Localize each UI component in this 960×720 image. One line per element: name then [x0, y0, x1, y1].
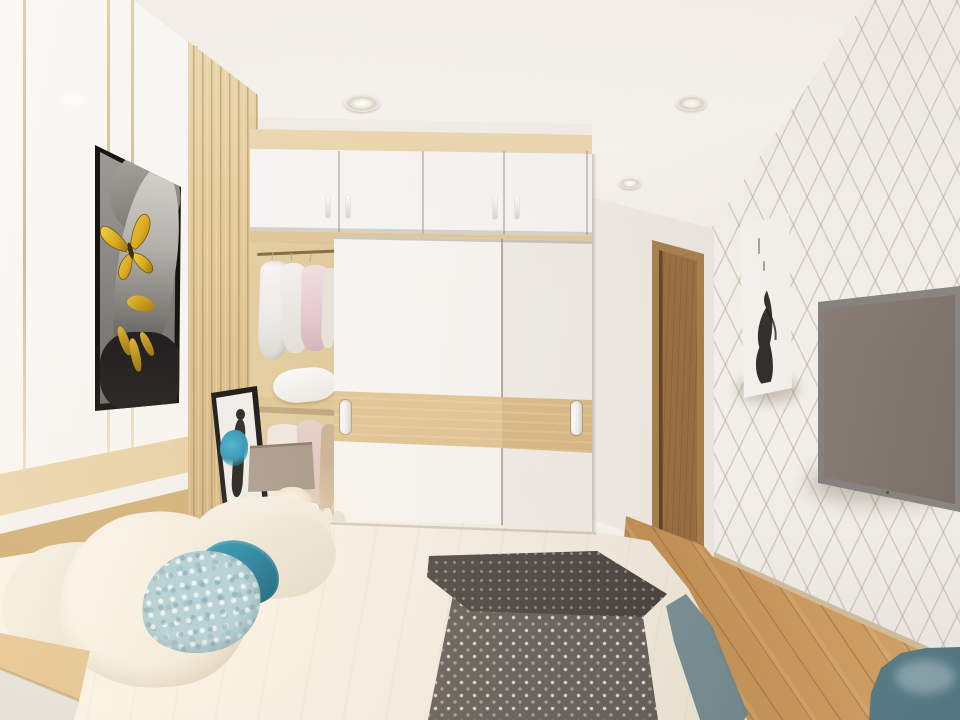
wall-light-reflection — [60, 95, 88, 105]
ceiling-spotlight-icon — [344, 95, 380, 112]
cabinet-handle — [346, 195, 350, 218]
ceiling-spotlight-icon — [676, 96, 707, 111]
art-teal-accent — [220, 430, 248, 466]
calligraphy-mark — [758, 238, 760, 254]
sliding-door-seam — [501, 239, 503, 542]
tv-logo-icon — [886, 491, 889, 494]
cabinet-door-seam — [503, 151, 505, 235]
cabinet-door-seam — [338, 151, 340, 235]
ceiling-spotlight-icon — [619, 178, 641, 189]
sliding-door-handle — [571, 401, 582, 435]
wardrobe-side-shadow — [592, 154, 597, 554]
cabinet-door-seam — [586, 151, 588, 235]
ink-figure-icon — [748, 286, 786, 392]
calligraphy-mark — [763, 261, 765, 271]
portrait-shoulder — [100, 332, 182, 412]
bedroom-scene — [0, 0, 960, 720]
chair-highlight — [895, 660, 955, 694]
cabinet-door-seam — [422, 151, 424, 235]
cabinet-handle — [515, 196, 519, 219]
cabinet-handle — [326, 195, 330, 218]
gold-strip — [23, 0, 26, 470]
cabinet-handle — [493, 196, 497, 219]
